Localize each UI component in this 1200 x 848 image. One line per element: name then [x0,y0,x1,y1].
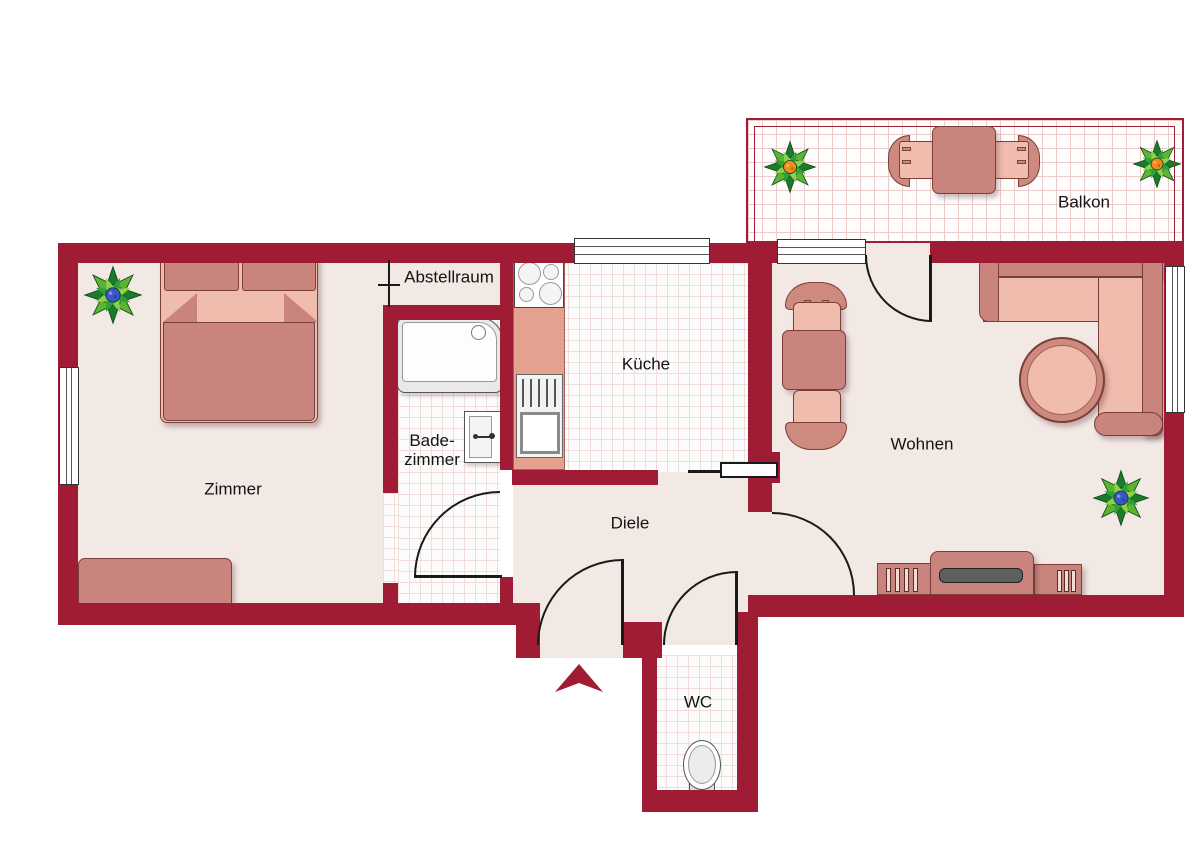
door-leaf-balcony [929,255,932,322]
window-wohnen [1165,266,1185,413]
drainboard-line [546,379,548,407]
room-label-diele: Diele [611,513,650,532]
sofa-armrest-left [979,256,999,322]
door-leaf-entrance [621,559,624,645]
wall-zimmer-bad-lower [383,583,398,625]
wall-bad-right-lower [500,577,513,625]
room-label-zimmer: Zimmer [204,479,262,498]
washbasin-faucet-knob [489,433,495,439]
drainboard-line [538,379,540,407]
sofa-seat-right [1098,277,1143,416]
chair-prong [1017,160,1026,164]
drainboard-line [554,379,556,407]
wall-wohnen-bottom [748,595,1184,617]
tv-screen [939,568,1023,583]
room-label-wc: WC [684,692,712,711]
wall-bottom-left [58,603,540,625]
burner [518,262,541,285]
window-balcony-door-side [777,239,866,264]
badezimmer-door-gap-floor [383,493,398,583]
balcony-table [932,126,996,194]
wohnen-doorway-floor [748,512,774,597]
burner [539,282,562,305]
window-kueche [574,238,710,264]
bed-blanket [163,322,315,421]
kitchen-sink-basin [520,412,560,454]
sideboard-slat [1057,570,1062,592]
room-label-abstellraum: Abstellraum [404,267,494,286]
door-leaf-wc [735,571,738,645]
wall-top-main [58,243,866,263]
sideboard-slat [886,568,891,592]
wall-wc-left [642,645,657,812]
wall-zimmer-bad-upper [383,305,398,493]
door-tick-abstellraum [378,284,400,286]
sideboard-slat [895,568,900,592]
room-label-badezimmer-line1: Bade- [409,431,454,450]
drainboard-line [530,379,532,407]
sliding-door-track [688,470,722,473]
toilet-bowl [688,745,716,784]
window-zimmer [59,367,79,485]
chair-prong [1017,147,1026,151]
bench [78,558,232,605]
sofa-armrest-bottom [1094,412,1163,436]
plant-balcony-left [763,138,817,196]
sideboard-slat [1071,570,1076,592]
room-label-badezimmer: Bade- zimmer [404,431,460,469]
room-label-wohnen: Wohnen [890,434,953,453]
burner [543,264,559,280]
wall-top-right [930,243,1184,263]
sideboard-slat [904,568,909,592]
room-label-badezimmer-line2: zimmer [404,450,460,469]
sideboard-slat [1064,570,1069,592]
wall-kueche-diele [512,470,658,485]
burner [519,287,534,302]
round-table-top [1027,345,1097,415]
plant-balcony-right [1132,137,1182,191]
plant-wohnen [1092,468,1150,528]
entrance-arrow [555,664,603,692]
wall-bad-right-upper [500,263,513,470]
chair-prong [902,147,911,151]
room-label-balkon: Balkon [1058,192,1110,211]
chair-prong [902,160,911,164]
wall-abstellraum-bottom [383,305,500,320]
sofa-back-right [1142,256,1163,436]
sideboard-slat [913,568,918,592]
wall-wc-right [737,612,758,812]
wall-wc-bottom [642,790,758,812]
door-leaf-badezimmer [414,575,502,578]
room-label-kueche: Küche [622,354,670,373]
plant-zimmer [83,264,143,326]
drainboard-line [522,379,524,407]
bathtub-drain [471,325,486,340]
sliding-door-kueche [720,462,778,478]
dining-table [782,330,846,390]
floor-plan: Zimmer Abstellraum Bade- zimmer Küche Di… [0,0,1200,848]
